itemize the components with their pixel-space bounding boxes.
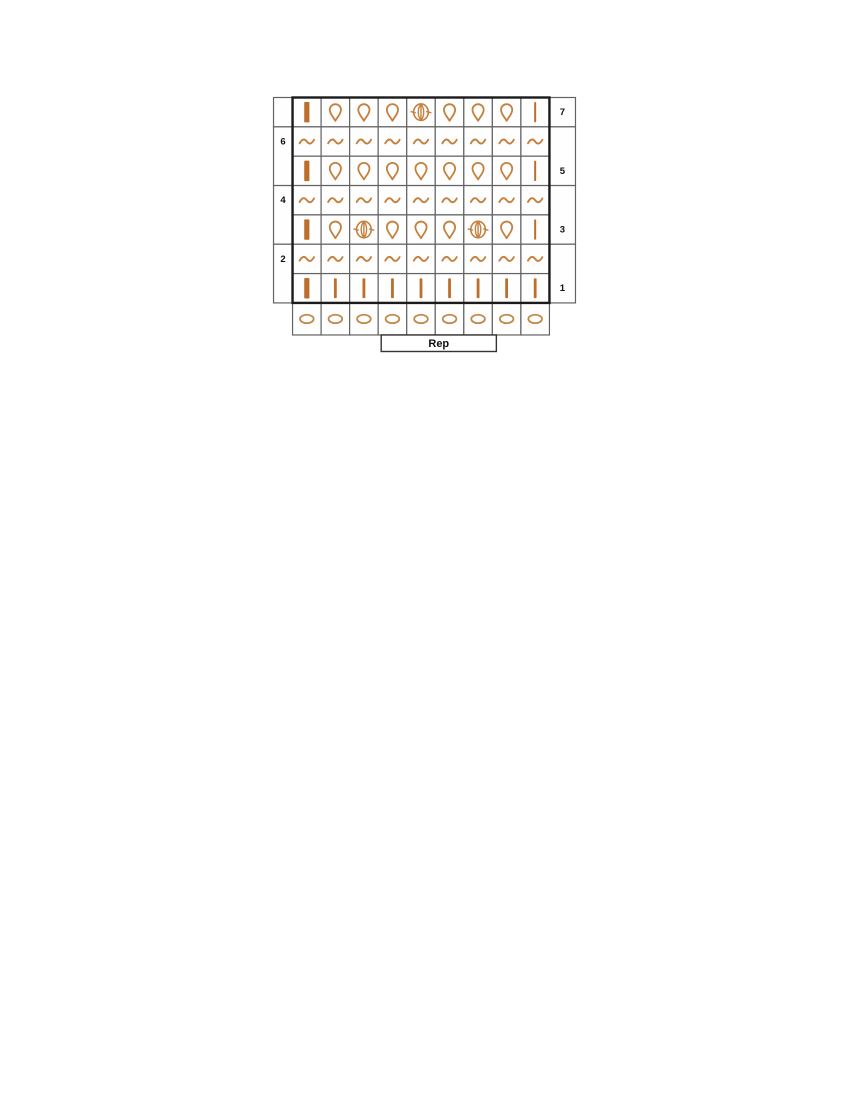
medium-bar-stitch-icon <box>448 278 451 298</box>
grid-cell <box>321 303 350 335</box>
thick-bar-stitch-icon <box>304 161 309 181</box>
grid-cell <box>378 156 407 185</box>
grid-cell <box>321 215 350 244</box>
row-label-cell-left <box>274 98 293 127</box>
grid-cell <box>435 303 464 335</box>
chart-root: 7654321Rep <box>274 98 576 352</box>
grid-cell <box>464 98 493 127</box>
grid-cell <box>435 156 464 185</box>
medium-bar-stitch-icon <box>363 278 366 298</box>
repeat-label: Rep <box>428 338 449 350</box>
row-number-label: 3 <box>560 225 565 236</box>
grid-cell <box>378 98 407 127</box>
grid-cell <box>321 98 350 127</box>
medium-bar-stitch-icon <box>534 278 537 298</box>
document-canvas: 7654321Rep <box>0 0 850 1100</box>
row-number-label: 5 <box>560 166 566 177</box>
medium-bar-stitch-icon <box>477 278 480 298</box>
medium-bar-stitch-icon <box>505 278 508 298</box>
grid-cell <box>378 303 407 335</box>
grid-cell <box>464 156 493 185</box>
grid-cell <box>350 303 379 335</box>
row-number-label: 2 <box>280 254 285 265</box>
medium-bar-stitch-icon <box>334 278 337 298</box>
row-number-label: 4 <box>280 195 286 206</box>
grid-cell <box>407 215 436 244</box>
grid-cell <box>350 156 379 185</box>
medium-bar-stitch-icon <box>420 278 423 298</box>
thick-bar-stitch-icon <box>304 102 309 122</box>
grid-cell <box>492 98 521 127</box>
grid-cell <box>435 98 464 127</box>
grid-cell <box>293 303 322 335</box>
grid-cell <box>492 303 521 335</box>
row-number-label: 1 <box>560 283 566 294</box>
grid-cell <box>350 98 379 127</box>
crochet-chart: 7654321Rep <box>272 96 577 358</box>
row-number-label: 6 <box>280 137 285 148</box>
grid-cell <box>521 303 550 335</box>
thick-bar-stitch-icon <box>304 219 309 239</box>
grid-cell <box>492 156 521 185</box>
grid-cell <box>378 215 407 244</box>
row-number-label: 7 <box>560 107 565 118</box>
thick-bar-stitch-icon <box>304 278 309 298</box>
grid-cell <box>407 303 436 335</box>
medium-bar-stitch-icon <box>391 278 394 298</box>
grid-cell <box>321 156 350 185</box>
grid-cell <box>492 215 521 244</box>
grid-cell <box>407 156 436 185</box>
stitch-chart-svg: 7654321Rep <box>272 96 577 353</box>
grid-cell <box>435 215 464 244</box>
grid-cell <box>464 303 493 335</box>
